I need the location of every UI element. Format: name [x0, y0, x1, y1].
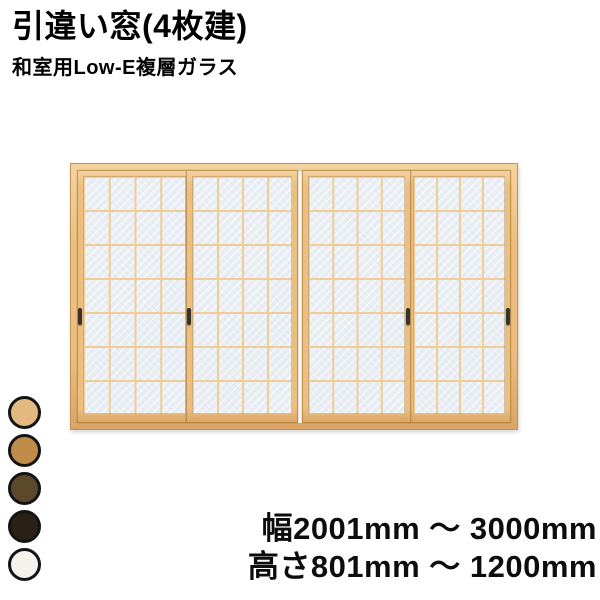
dimension-specs: 幅2001mm ～ 3000mm 高さ801mm ～ 1200mm — [248, 510, 597, 586]
shoji-glass-1 — [83, 176, 186, 414]
color-swatch-medium-wood[interactable] — [8, 434, 41, 467]
color-swatch-list — [8, 396, 41, 581]
window-sash-3 — [302, 170, 411, 423]
product-subtitle: 和室用Low-E複層ガラス — [12, 51, 248, 80]
sash-handle-icon — [506, 308, 510, 325]
shoji-glass-2 — [192, 176, 292, 414]
window-frame-track — [77, 170, 511, 423]
product-page: 引違い窓(4枚建) 和室用Low-E複層ガラス — [0, 0, 600, 600]
color-swatch-dark-brown[interactable] — [8, 510, 41, 543]
shoji-glass-3 — [308, 176, 405, 414]
window-sash-2 — [186, 170, 298, 423]
height-range-text: 高さ801mm ～ 1200mm — [248, 548, 597, 586]
color-swatch-off-white[interactable] — [8, 548, 41, 581]
shoji-glass-4 — [413, 176, 505, 414]
sash-handle-icon — [406, 308, 410, 325]
header: 引違い窓(4枚建) 和室用Low-E複層ガラス — [12, 10, 248, 80]
window-sash-1 — [77, 170, 192, 423]
sash-handle-icon — [78, 308, 82, 325]
width-range-text: 幅2001mm ～ 3000mm — [248, 510, 597, 548]
window-sash-4 — [407, 170, 511, 423]
color-swatch-dark-olive-wood[interactable] — [8, 472, 41, 505]
sash-handle-icon — [187, 308, 191, 325]
product-title: 引違い窓(4枚建) — [12, 10, 248, 44]
window-illustration — [70, 163, 518, 430]
color-swatch-light-wood[interactable] — [8, 396, 41, 429]
